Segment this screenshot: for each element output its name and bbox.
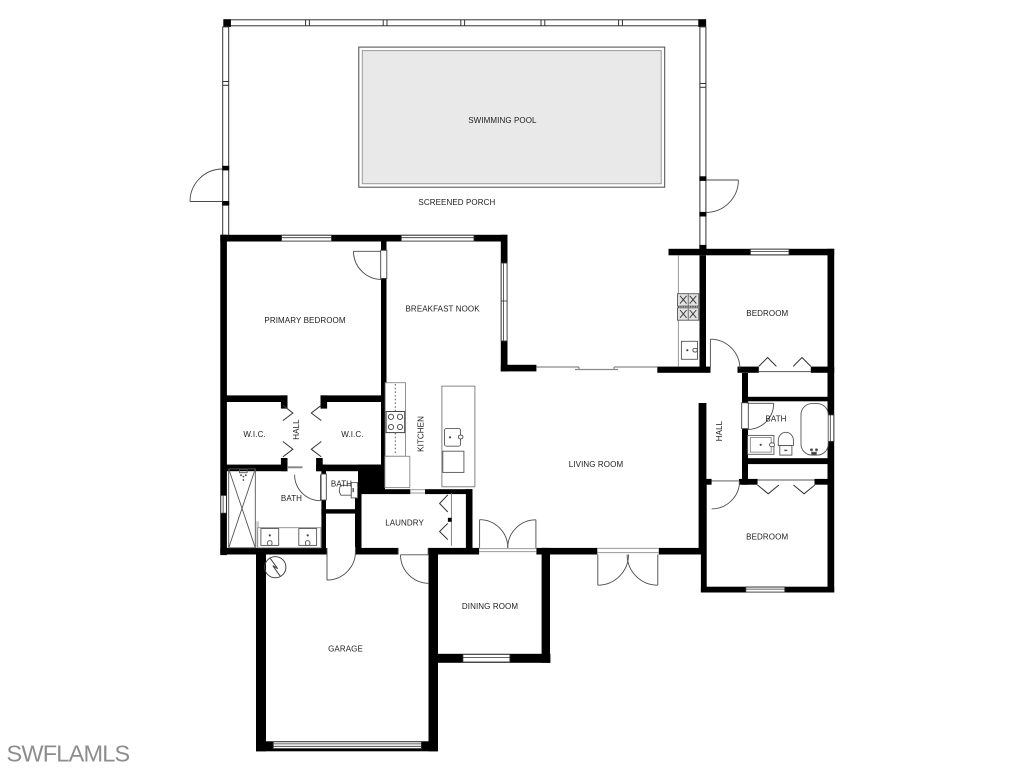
svg-text:SCREENED PORCH: SCREENED PORCH [418,198,495,207]
svg-text:BATH: BATH [281,494,302,503]
svg-text:BEDROOM: BEDROOM [746,532,788,541]
svg-text:SWIMMING POOL: SWIMMING POOL [468,116,537,125]
svg-text:BATH: BATH [765,415,786,424]
svg-text:SWFLAMLS: SWFLAMLS [7,764,130,768]
svg-text:W.I.C.: W.I.C. [243,430,265,439]
svg-text:GARAGE: GARAGE [328,644,363,653]
svg-text:HALL: HALL [292,419,301,440]
svg-text:BREAKFAST NOOK: BREAKFAST NOOK [406,305,481,314]
svg-text:BATH: BATH [331,479,352,488]
svg-text:KITCHEN: KITCHEN [417,416,426,452]
svg-text:SWFLAMLS: SWFLAMLS [7,741,130,767]
svg-text:PRIMARY BEDROOM: PRIMARY BEDROOM [264,316,345,325]
svg-text:DINING ROOM: DINING ROOM [462,602,518,611]
svg-text:BEDROOM: BEDROOM [746,309,788,318]
svg-text:LIVING ROOM: LIVING ROOM [569,460,624,469]
svg-text:W.I.C.: W.I.C. [341,430,363,439]
svg-text:LAUNDRY: LAUNDRY [385,518,424,527]
svg-text:HALL: HALL [715,420,724,441]
